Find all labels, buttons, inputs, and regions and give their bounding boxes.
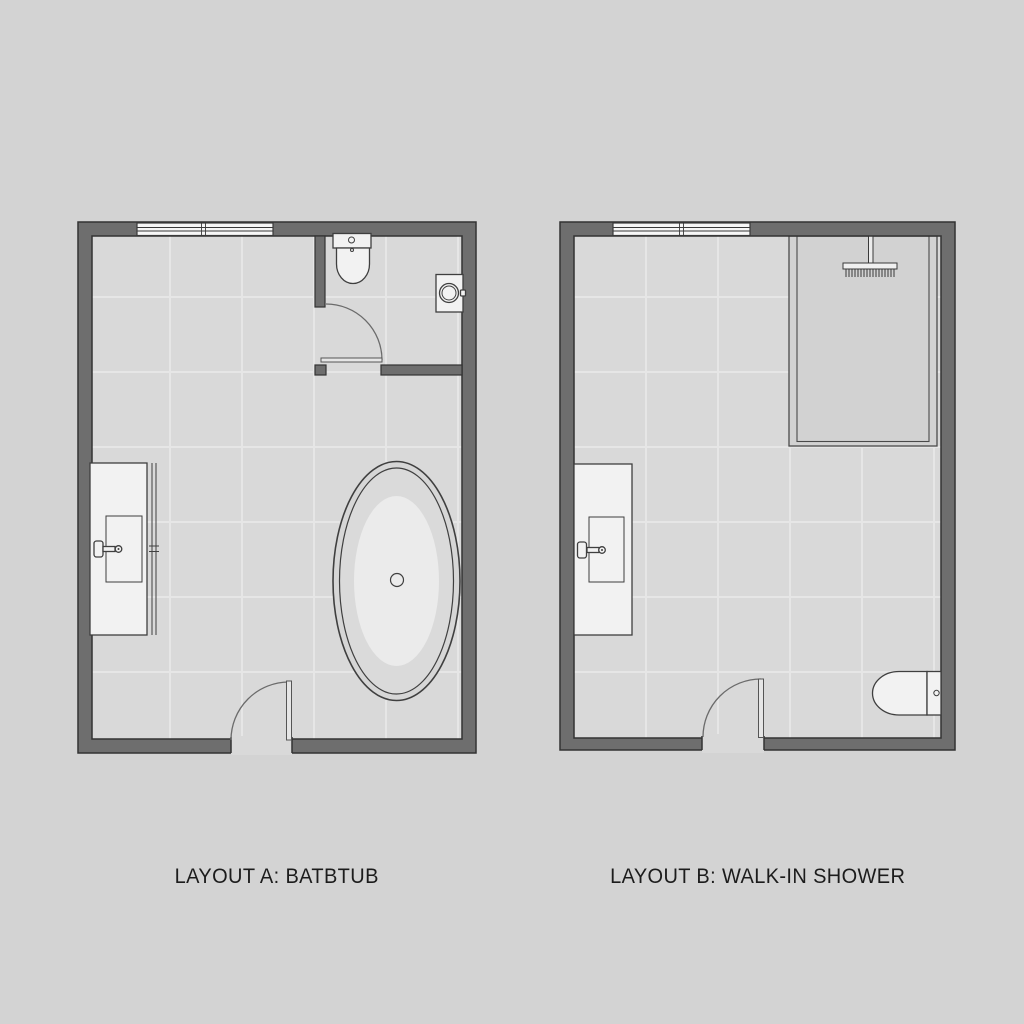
corner-sink — [436, 275, 466, 313]
toilet-tank-a — [333, 234, 371, 249]
toilet-bowl-a — [337, 248, 370, 284]
bathtub-drain — [391, 574, 404, 587]
wc-partition-wall — [315, 236, 325, 307]
window-a — [137, 223, 273, 236]
caption-layout-b-text: LAYOUT B: WALK-IN SHOWER — [610, 864, 905, 889]
caption-layout-b: LAYOUT B: WALK-IN SHOWER — [560, 864, 955, 889]
entry-door-leaf-b — [759, 679, 764, 738]
toilet-bowl-b — [873, 671, 928, 715]
walk-in-shower — [789, 236, 937, 446]
corner-sink-tap — [461, 290, 466, 296]
caption-layout-a-text: LAYOUT A: BATBTUB — [175, 864, 379, 889]
window-b — [613, 223, 750, 236]
caption-layout-a: LAYOUT A: BATBTUB — [78, 864, 476, 889]
plan-a — [78, 222, 476, 755]
door-gap-a — [231, 736, 292, 755]
vanity-b — [574, 464, 632, 635]
door-gap-b — [702, 734, 764, 753]
bathtub — [333, 462, 460, 701]
entry-door-leaf-a — [287, 681, 292, 740]
toilet-b — [873, 671, 942, 715]
wc-door-post — [315, 365, 326, 375]
plan-b — [560, 222, 955, 753]
wc-side-wall — [381, 365, 462, 375]
wc-door-leaf — [321, 358, 382, 362]
